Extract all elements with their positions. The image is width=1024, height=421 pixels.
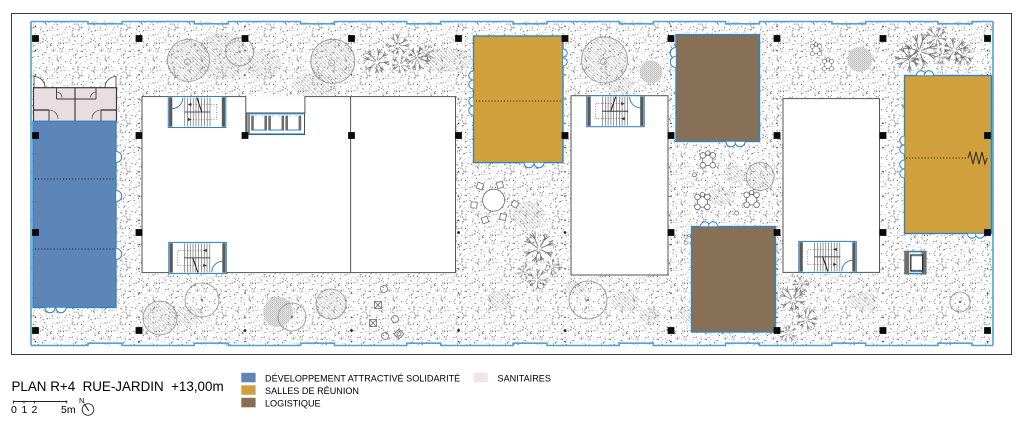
svg-text:5m: 5m bbox=[61, 404, 76, 416]
svg-text:LOGISTIQUE: LOGISTIQUE bbox=[265, 398, 321, 408]
svg-text:0: 0 bbox=[11, 404, 17, 416]
svg-text:N: N bbox=[79, 396, 84, 405]
svg-text:2: 2 bbox=[32, 404, 38, 416]
svg-text:PLAN R+4 RUE-JARDIN +13,00m: PLAN R+4 RUE-JARDIN +13,00m bbox=[12, 379, 224, 394]
svg-text:1: 1 bbox=[22, 404, 28, 416]
svg-text:SANITAIRES: SANITAIRES bbox=[498, 373, 551, 383]
svg-text:SALLES DE RÉUNION: SALLES DE RÉUNION bbox=[265, 386, 359, 396]
svg-text:DÉVELOPPEMENT ATTRACTIVÉ SOLID: DÉVELOPPEMENT ATTRACTIVÉ SOLIDARITÉ bbox=[265, 373, 460, 383]
